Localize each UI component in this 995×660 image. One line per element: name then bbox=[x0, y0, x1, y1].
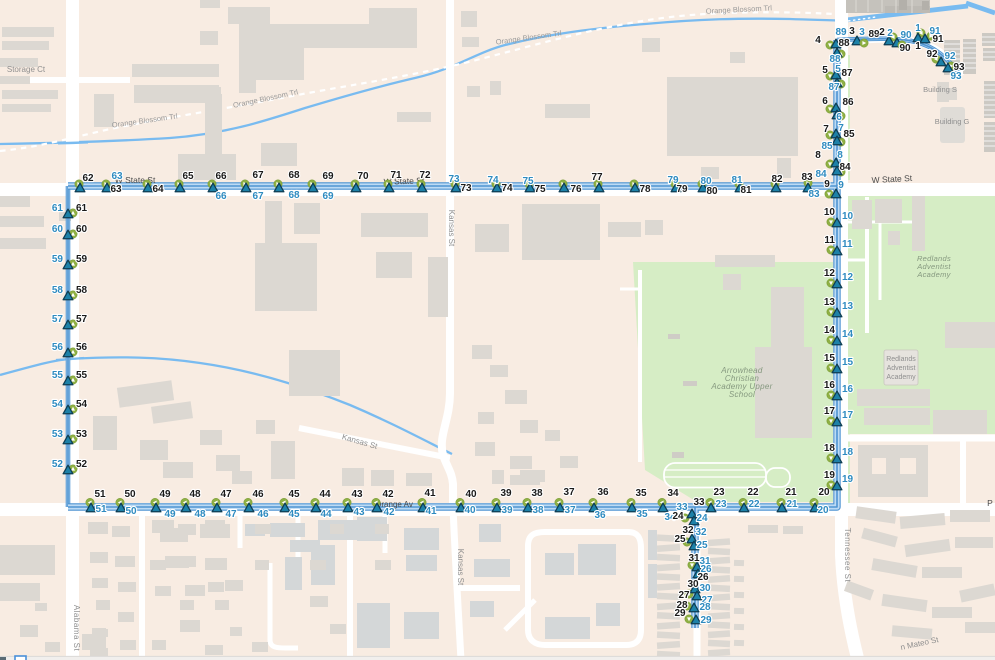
svg-text:23: 23 bbox=[713, 487, 725, 498]
svg-text:67: 67 bbox=[252, 191, 264, 202]
svg-text:24: 24 bbox=[696, 513, 708, 524]
svg-text:41: 41 bbox=[425, 506, 437, 517]
svg-text:2: 2 bbox=[887, 28, 893, 39]
svg-text:10: 10 bbox=[842, 211, 854, 222]
svg-text:61: 61 bbox=[52, 203, 64, 214]
svg-text:49: 49 bbox=[164, 509, 176, 520]
svg-text:2: 2 bbox=[879, 27, 885, 38]
svg-text:80: 80 bbox=[706, 186, 718, 197]
svg-text:47: 47 bbox=[225, 509, 237, 520]
svg-text:61: 61 bbox=[76, 203, 88, 214]
svg-text:1: 1 bbox=[915, 41, 921, 52]
svg-text:46: 46 bbox=[257, 509, 269, 520]
svg-text:20: 20 bbox=[818, 487, 830, 498]
svg-text:58: 58 bbox=[76, 285, 88, 296]
svg-text:4: 4 bbox=[815, 35, 821, 46]
svg-text:17: 17 bbox=[824, 406, 836, 417]
svg-text:93: 93 bbox=[950, 71, 962, 82]
svg-text:29: 29 bbox=[700, 615, 712, 626]
svg-text:21: 21 bbox=[785, 487, 797, 498]
svg-text:19: 19 bbox=[824, 470, 836, 481]
svg-text:91: 91 bbox=[932, 34, 944, 45]
svg-text:85: 85 bbox=[843, 129, 855, 140]
svg-text:81: 81 bbox=[740, 185, 752, 196]
svg-text:67: 67 bbox=[252, 170, 264, 181]
svg-text:81: 81 bbox=[731, 175, 743, 186]
svg-text:66: 66 bbox=[215, 191, 227, 202]
svg-text:59: 59 bbox=[76, 254, 88, 265]
svg-text:56: 56 bbox=[52, 342, 64, 353]
svg-text:74: 74 bbox=[487, 175, 499, 186]
svg-text:11: 11 bbox=[824, 235, 835, 246]
svg-text:53: 53 bbox=[52, 429, 64, 440]
svg-text:63: 63 bbox=[111, 171, 123, 182]
svg-text:54: 54 bbox=[76, 399, 88, 410]
svg-text:92: 92 bbox=[926, 49, 938, 60]
svg-text:22: 22 bbox=[748, 499, 760, 510]
svg-text:39: 39 bbox=[500, 488, 512, 499]
svg-text:58: 58 bbox=[52, 285, 64, 296]
svg-text:49: 49 bbox=[159, 489, 171, 500]
svg-text:55: 55 bbox=[52, 370, 64, 381]
svg-text:30: 30 bbox=[687, 579, 699, 590]
svg-text:82: 82 bbox=[771, 174, 783, 185]
svg-text:3: 3 bbox=[849, 26, 855, 37]
svg-text:24: 24 bbox=[672, 511, 684, 522]
svg-text:13: 13 bbox=[824, 297, 836, 308]
svg-text:55: 55 bbox=[76, 370, 88, 381]
svg-text:90: 90 bbox=[900, 30, 912, 41]
svg-text:1: 1 bbox=[915, 23, 921, 34]
svg-text:62: 62 bbox=[82, 173, 94, 184]
svg-text:P: P bbox=[987, 498, 993, 508]
svg-text:Kansas St: Kansas St bbox=[456, 549, 465, 586]
svg-text:65: 65 bbox=[182, 171, 194, 182]
svg-text:17: 17 bbox=[842, 410, 854, 421]
svg-text:42: 42 bbox=[383, 507, 395, 518]
svg-text:46: 46 bbox=[252, 489, 264, 500]
svg-text:89: 89 bbox=[835, 27, 847, 38]
svg-text:40: 40 bbox=[465, 489, 477, 500]
svg-text:57: 57 bbox=[76, 314, 88, 325]
svg-text:68: 68 bbox=[288, 190, 300, 201]
svg-text:Alabama St: Alabama St bbox=[72, 605, 81, 652]
svg-text:44: 44 bbox=[320, 509, 332, 520]
svg-text:5: 5 bbox=[822, 65, 828, 76]
svg-text:45: 45 bbox=[288, 509, 300, 520]
svg-text:Academy: Academy bbox=[916, 270, 951, 279]
svg-text:48: 48 bbox=[189, 489, 201, 500]
svg-text:Kansas St: Kansas St bbox=[447, 210, 456, 247]
svg-text:19: 19 bbox=[842, 474, 854, 485]
svg-text:60: 60 bbox=[52, 224, 64, 235]
svg-text:18: 18 bbox=[842, 447, 854, 458]
svg-text:3: 3 bbox=[859, 27, 865, 38]
svg-text:Building G: Building G bbox=[935, 117, 970, 126]
svg-text:39: 39 bbox=[501, 505, 513, 516]
svg-text:51: 51 bbox=[95, 504, 107, 515]
svg-text:72: 72 bbox=[419, 170, 431, 181]
svg-text:Academy: Academy bbox=[886, 374, 916, 381]
svg-text:63: 63 bbox=[110, 184, 122, 195]
svg-text:8: 8 bbox=[815, 150, 821, 161]
svg-text:50: 50 bbox=[125, 506, 137, 517]
svg-text:60: 60 bbox=[76, 224, 88, 235]
svg-text:54: 54 bbox=[52, 399, 64, 410]
svg-text:31: 31 bbox=[688, 553, 700, 564]
svg-text:43: 43 bbox=[351, 489, 363, 500]
svg-text:6: 6 bbox=[822, 96, 828, 107]
svg-text:88: 88 bbox=[838, 38, 850, 49]
svg-text:83: 83 bbox=[808, 189, 820, 200]
svg-text:16: 16 bbox=[842, 384, 854, 395]
svg-text:10: 10 bbox=[824, 207, 836, 218]
svg-text:68: 68 bbox=[288, 170, 300, 181]
svg-text:Storage Ct: Storage Ct bbox=[7, 65, 46, 74]
svg-text:71: 71 bbox=[390, 170, 402, 181]
svg-text:45: 45 bbox=[288, 489, 300, 500]
svg-text:5: 5 bbox=[835, 64, 841, 75]
svg-text:9: 9 bbox=[838, 180, 844, 191]
svg-text:84: 84 bbox=[839, 162, 851, 173]
svg-text:74: 74 bbox=[501, 183, 513, 194]
svg-text:33: 33 bbox=[693, 497, 705, 508]
svg-text:78: 78 bbox=[639, 184, 651, 195]
svg-text:42: 42 bbox=[382, 489, 394, 500]
svg-text:25: 25 bbox=[696, 540, 708, 551]
svg-text:37: 37 bbox=[563, 487, 575, 498]
svg-text:29: 29 bbox=[674, 608, 686, 619]
svg-text:64: 64 bbox=[152, 184, 164, 195]
svg-text:57: 57 bbox=[52, 314, 64, 325]
svg-text:Redlands: Redlands bbox=[886, 356, 916, 363]
svg-text:21: 21 bbox=[786, 499, 798, 510]
svg-text:Adventist: Adventist bbox=[887, 365, 916, 372]
svg-text:20: 20 bbox=[817, 505, 829, 516]
svg-text:66: 66 bbox=[215, 171, 227, 182]
svg-text:9: 9 bbox=[824, 179, 830, 190]
svg-text:14: 14 bbox=[824, 325, 836, 336]
svg-text:87: 87 bbox=[828, 82, 840, 93]
svg-text:18: 18 bbox=[824, 443, 836, 454]
svg-text:79: 79 bbox=[667, 175, 679, 186]
svg-text:6: 6 bbox=[836, 112, 842, 123]
svg-text:75: 75 bbox=[522, 176, 534, 187]
svg-text:12: 12 bbox=[842, 272, 854, 283]
svg-text:84: 84 bbox=[815, 169, 827, 180]
svg-text:40: 40 bbox=[464, 505, 476, 516]
svg-text:36: 36 bbox=[597, 487, 609, 498]
svg-text:35: 35 bbox=[635, 488, 647, 499]
svg-text:52: 52 bbox=[52, 459, 64, 470]
svg-text:73: 73 bbox=[448, 174, 460, 185]
svg-text:30: 30 bbox=[699, 583, 711, 594]
svg-text:32: 32 bbox=[695, 527, 707, 538]
svg-text:Tennessee St: Tennessee St bbox=[843, 528, 852, 583]
svg-text:15: 15 bbox=[842, 357, 854, 368]
svg-text:25: 25 bbox=[674, 534, 686, 545]
svg-text:90: 90 bbox=[899, 43, 911, 54]
svg-text:School: School bbox=[729, 390, 755, 399]
svg-text:38: 38 bbox=[532, 505, 544, 516]
svg-text:52: 52 bbox=[76, 459, 88, 470]
svg-text:16: 16 bbox=[824, 380, 836, 391]
svg-text:22: 22 bbox=[747, 487, 759, 498]
svg-text:41: 41 bbox=[424, 488, 436, 499]
svg-text:50: 50 bbox=[124, 489, 136, 500]
svg-text:77: 77 bbox=[591, 172, 603, 183]
svg-text:11: 11 bbox=[842, 239, 853, 250]
svg-text:73: 73 bbox=[460, 183, 472, 194]
svg-text:7: 7 bbox=[823, 124, 829, 135]
svg-text:48: 48 bbox=[194, 509, 206, 520]
svg-text:59: 59 bbox=[52, 254, 64, 265]
svg-text:44: 44 bbox=[319, 489, 331, 500]
svg-text:47: 47 bbox=[220, 489, 232, 500]
svg-text:53: 53 bbox=[76, 429, 88, 440]
svg-text:87: 87 bbox=[841, 68, 853, 79]
svg-text:70: 70 bbox=[357, 171, 369, 182]
svg-text:76: 76 bbox=[570, 184, 582, 195]
svg-text:37: 37 bbox=[564, 505, 576, 516]
svg-text:69: 69 bbox=[322, 191, 334, 202]
svg-text:69: 69 bbox=[322, 171, 334, 182]
svg-text:15: 15 bbox=[824, 353, 836, 364]
svg-text:86: 86 bbox=[842, 97, 854, 108]
svg-text:36: 36 bbox=[594, 510, 606, 521]
svg-text:35: 35 bbox=[636, 509, 648, 520]
svg-text:92: 92 bbox=[944, 51, 956, 62]
svg-text:75: 75 bbox=[534, 184, 546, 195]
svg-text:26: 26 bbox=[697, 572, 709, 583]
svg-text:43: 43 bbox=[353, 507, 365, 518]
svg-text:56: 56 bbox=[76, 342, 88, 353]
svg-text:28: 28 bbox=[699, 602, 711, 613]
svg-text:8: 8 bbox=[837, 150, 843, 161]
svg-text:51: 51 bbox=[94, 489, 106, 500]
svg-text:23: 23 bbox=[715, 499, 727, 510]
svg-text:80: 80 bbox=[700, 176, 712, 187]
svg-text:14: 14 bbox=[842, 329, 854, 340]
svg-text:38: 38 bbox=[531, 488, 543, 499]
svg-text:85: 85 bbox=[821, 141, 833, 152]
svg-text:83: 83 bbox=[801, 172, 813, 183]
svg-text:Building S: Building S bbox=[923, 85, 957, 94]
svg-text:34: 34 bbox=[667, 488, 679, 499]
svg-text:12: 12 bbox=[824, 268, 836, 279]
svg-text:13: 13 bbox=[842, 301, 854, 312]
